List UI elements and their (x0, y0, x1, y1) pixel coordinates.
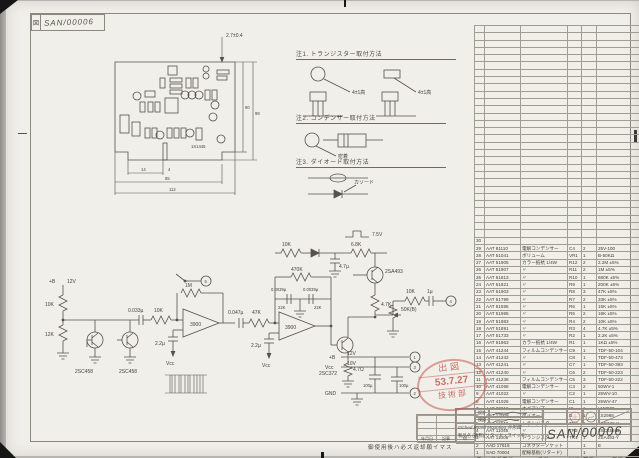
footer-return-note: 御使用後ハ必ズ返却願イマス (368, 443, 453, 451)
terminal-name: Vcc (325, 365, 334, 371)
table-row: 11AAT 41238フィルムコンデンサーC53TDF-50-222 (475, 376, 639, 383)
pcb-dim-right-a: 90 (245, 105, 250, 110)
cap-label: 0.0039µ (303, 287, 319, 292)
resistor-label: 10K (154, 308, 164, 314)
pcb-layout-drawing: 1S1445 2.7±0.4 90 98 14 4 85 112 (105, 25, 285, 205)
table-empty-row (475, 26, 639, 33)
scan-mark (321, 452, 324, 458)
resistor-label: 470K (291, 267, 303, 273)
table-empty-row (475, 230, 639, 237)
bias-network (57, 285, 139, 359)
table-empty-row (475, 186, 639, 193)
table-empty-row (475, 120, 639, 127)
transistor-label: 2SA493 (385, 269, 403, 275)
table-row: 23AAT 51903〃R8347K ±5% (475, 288, 639, 295)
scan-edge-shadow (0, 0, 6, 458)
note-capacitor-mounting: 注2. コンデンサー取付方法 (296, 113, 446, 124)
table-row: 30 (475, 237, 639, 244)
terminal-name: GND (325, 391, 337, 397)
table-empty-row (475, 84, 639, 91)
resistor-label: 47K (252, 310, 262, 316)
table-row: 8AAT 41026電解コンデンサーC1125WV-47 (475, 398, 639, 405)
terminal-number: 1 (414, 355, 417, 360)
drawing-title-line2: 製品名 (通称)(リタード・スイッチ) (458, 433, 544, 439)
table-empty-row (475, 62, 639, 69)
table-row: 29AAT 81110電解コンデンサーC4225V-100 (475, 244, 639, 251)
corner-artifact (0, 442, 16, 458)
table-row: 21AAT 51595〃R6115K ±5% (475, 303, 639, 310)
terminal-name: +B (329, 355, 336, 361)
table-empty-row (475, 106, 639, 113)
note-diode-mounting: 注3. ダイオード取付方法 (296, 157, 446, 168)
resistor-label: 6.8K (351, 242, 362, 248)
table-empty-row (475, 193, 639, 200)
table-empty-row (475, 201, 639, 208)
terminal-number: 4 (450, 299, 453, 304)
cap-label: 100µ (399, 383, 409, 388)
cap-label: 4.7µ (339, 264, 349, 270)
note-1-heading: 注1. トランジスター取付方法 (296, 49, 456, 60)
pcb-dim-b2: 85 (165, 176, 170, 181)
title-block: 設計 検図 Etched Bo (455, 408, 632, 442)
table-empty-row (475, 77, 639, 84)
cap-label: 0.0039µ (271, 287, 287, 292)
resistor-label: 12K (45, 332, 55, 338)
table-empty-row (475, 113, 639, 120)
terminal-volts: 12V (347, 351, 357, 357)
table-empty-row (475, 164, 639, 171)
table-row: 19AAT 51983〃R4210K ±5% (475, 317, 639, 324)
pcb-dim-b1: 14 (141, 167, 146, 172)
table-empty-row (475, 157, 639, 164)
scanned-drawing-sheet: 図 SAN/00006 1S1445 (0, 0, 639, 458)
drawing-number-box: 図 SAN/00006 (31, 14, 105, 31)
resistor-label: 10K (406, 289, 416, 295)
rev-header-note: 記事 (437, 435, 456, 442)
table-empty-row (475, 215, 639, 222)
drawing-number-tag: 図 (32, 15, 41, 30)
transistor-label: 2SC458 (119, 369, 137, 375)
opamp-1 (168, 289, 235, 356)
pcb-part-label: 1S1445 (191, 144, 206, 149)
table-empty-row (475, 98, 639, 105)
note-1-dim: 4±1高 (418, 89, 431, 96)
table-row: 13AAT 41241〃C71TDF-50-393 (475, 361, 639, 368)
transistor-label: 2SC372 (319, 371, 337, 377)
table-row: 1SAD 70004配線基板(リタード)1 (475, 449, 639, 456)
table-row: 15AAT 41244フィルムコンデンサーC91TDF-50-104 (475, 347, 639, 354)
drawing-number-handwritten-large: SAN/00006 (547, 423, 623, 442)
table-empty-row (475, 150, 639, 157)
terminal-volts: 10V (347, 361, 357, 367)
twin-t-network (274, 273, 331, 326)
table-row: 25AAT 51813〃R101680K ±5% (475, 274, 639, 281)
table-empty-row (475, 171, 639, 178)
power-terminals (341, 352, 420, 405)
table-row: 10AAT 41098電解コンデンサーC3250WV-1 (475, 383, 639, 390)
table-empty-row (475, 208, 639, 215)
table-empty-row (475, 142, 639, 149)
resistor-label: 22K (278, 305, 286, 310)
table-row: 18AAT 51891〃R344.7K ±5% (475, 325, 639, 332)
cap-label: 0.033µ (128, 308, 144, 314)
note-3-sketch: カソード (298, 170, 448, 206)
table-empty-row (475, 91, 639, 98)
scan-mark (344, 0, 346, 7)
table-row: 22AAT 51799〃R7233K ±5% (475, 295, 639, 302)
note-1-dim: 4±1高 (352, 89, 365, 96)
waveform-sketch (345, 231, 369, 237)
hanko-stamp (567, 410, 583, 424)
table-row: 27AAT 51905カラー抵抗 1/4WR1222.2M ±5% (475, 259, 639, 266)
pot-label: 50K(B) (401, 307, 417, 313)
table-empty-row (475, 40, 639, 47)
drawing-title-cell: Etched Board Mounting 外形図 製品名 (通称)(リタード・… (456, 423, 546, 444)
table-row: 12AAT 41240〃C62TDF-50-223 (475, 368, 639, 375)
terminal-number: 5 (205, 279, 208, 284)
coupling-network (239, 318, 279, 328)
opamp-2 (264, 312, 332, 358)
resistor-label: 22K (314, 305, 322, 310)
table-empty-row (475, 47, 639, 54)
pcb-dim-b3: 112 (169, 187, 176, 192)
drawing-title-line1: Etched Board Mounting 外形図 (458, 425, 544, 431)
opamp-label: 3900 (285, 325, 296, 331)
table-empty-row (475, 223, 639, 230)
pcb-slot (163, 143, 167, 160)
diagonal-slash (599, 410, 631, 424)
cap-label: 0.047µ (228, 310, 244, 316)
resistor-label: 4.7Ω (353, 367, 364, 373)
parts-list-table: 3029AAT 81110電解コンデンサーC4225V-10028AAT 510… (474, 25, 639, 458)
supply-volts: 12V (67, 279, 77, 285)
table-row: 9AAT 41022〃C2125WV-10 (475, 390, 639, 397)
drawing-number-handwritten: SAN/00006 (41, 17, 94, 28)
rail-label: Vcc (262, 363, 271, 369)
table-empty-row (475, 128, 639, 135)
transistor-label: 2SC458 (75, 369, 93, 375)
opamp-label: 3900 (190, 322, 201, 328)
terminal-number: 2 (414, 391, 417, 396)
note-3-label: カソード (354, 180, 374, 186)
pcb-dimensions (115, 37, 257, 195)
margin-tick (18, 133, 27, 134)
cap-label: 2.2µ (251, 343, 261, 349)
cap-label: 2.2µ (155, 341, 165, 347)
transistor-q1 (87, 320, 103, 363)
note-transistor-mounting: 注1. トランジスター取付方法 (296, 49, 456, 60)
supply-label: +B (49, 279, 56, 285)
table-empty-row (475, 179, 639, 186)
hanko-stamp (583, 410, 599, 424)
table-row: 20AAT 51985〃R5218K ±5% (475, 310, 639, 317)
transistor-q3 (353, 253, 383, 315)
rail-label: Vcc (166, 361, 175, 367)
pcb-dim-right-b: 98 (255, 111, 260, 116)
rev-header-date: 年月日 (418, 435, 437, 442)
drawing-no-cell: SAN/00006 パシフィック㈱ (542, 423, 632, 442)
resistor-label: 10K (45, 302, 55, 308)
table-empty-row (475, 135, 639, 142)
table-row: 16AAT 51963カラー抵抗 1/4WR111KΩ ±5% (475, 339, 639, 346)
table-empty-row (475, 69, 639, 76)
resistor-label: 1M (185, 283, 192, 289)
note-2-heading: 注2. コンデンサー取付方法 (296, 113, 446, 124)
table-row: 17AAT 51733〃R212.2K ±5% (475, 332, 639, 339)
corner-artifact (0, 0, 18, 14)
cap-label: 100µ (363, 383, 373, 388)
waveform-label: 7.5V (372, 232, 383, 238)
circuit-schematic: +B 12V 10K 12K 2SC458 2SC458 0.033µ 10K (35, 225, 480, 415)
pcb-dim-b1b: 4 (168, 167, 171, 172)
table-row: 26AAT 51907〃R1121M ±5% (475, 266, 639, 273)
pcb-components (120, 66, 229, 143)
pcb-dim-top: 2.7±0.4 (226, 33, 243, 39)
table-row: 14AAT 41242〃C81TDF-50-473 (475, 354, 639, 361)
note-3-heading: 注3. ダイオード取付方法 (296, 157, 446, 168)
table-row: 28AAT 51041ボリュームVR11B-50KΩ (475, 252, 639, 259)
table-empty-row (475, 33, 639, 40)
table-row: 24AAT 51821〃R91200K ±5% (475, 281, 639, 288)
table-empty-row (475, 55, 639, 62)
cap-label: 1µ (427, 289, 433, 295)
label-block (165, 375, 207, 393)
resistor-label: 10K (282, 242, 292, 248)
parts-table-body: 3029AAT 81110電解コンデンサーC4225V-10028AAT 510… (475, 26, 639, 458)
